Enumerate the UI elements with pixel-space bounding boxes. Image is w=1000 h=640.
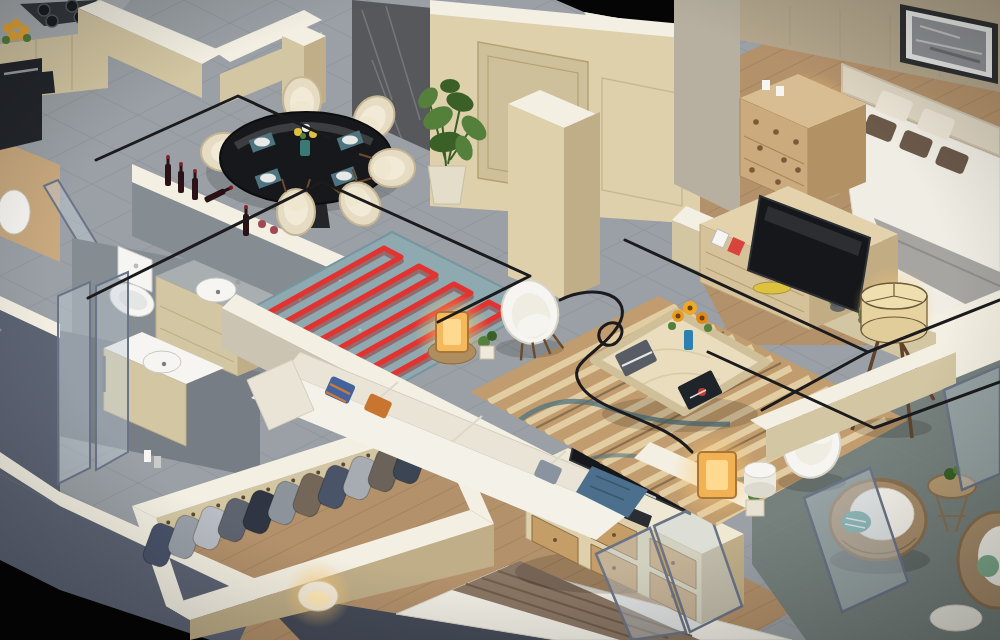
vignette (0, 0, 1000, 640)
apartment-render: 3D isometric cutaway floor plan render o… (0, 0, 1000, 640)
isometric-scene: 3D isometric cutaway floor plan render o… (0, 0, 1000, 640)
